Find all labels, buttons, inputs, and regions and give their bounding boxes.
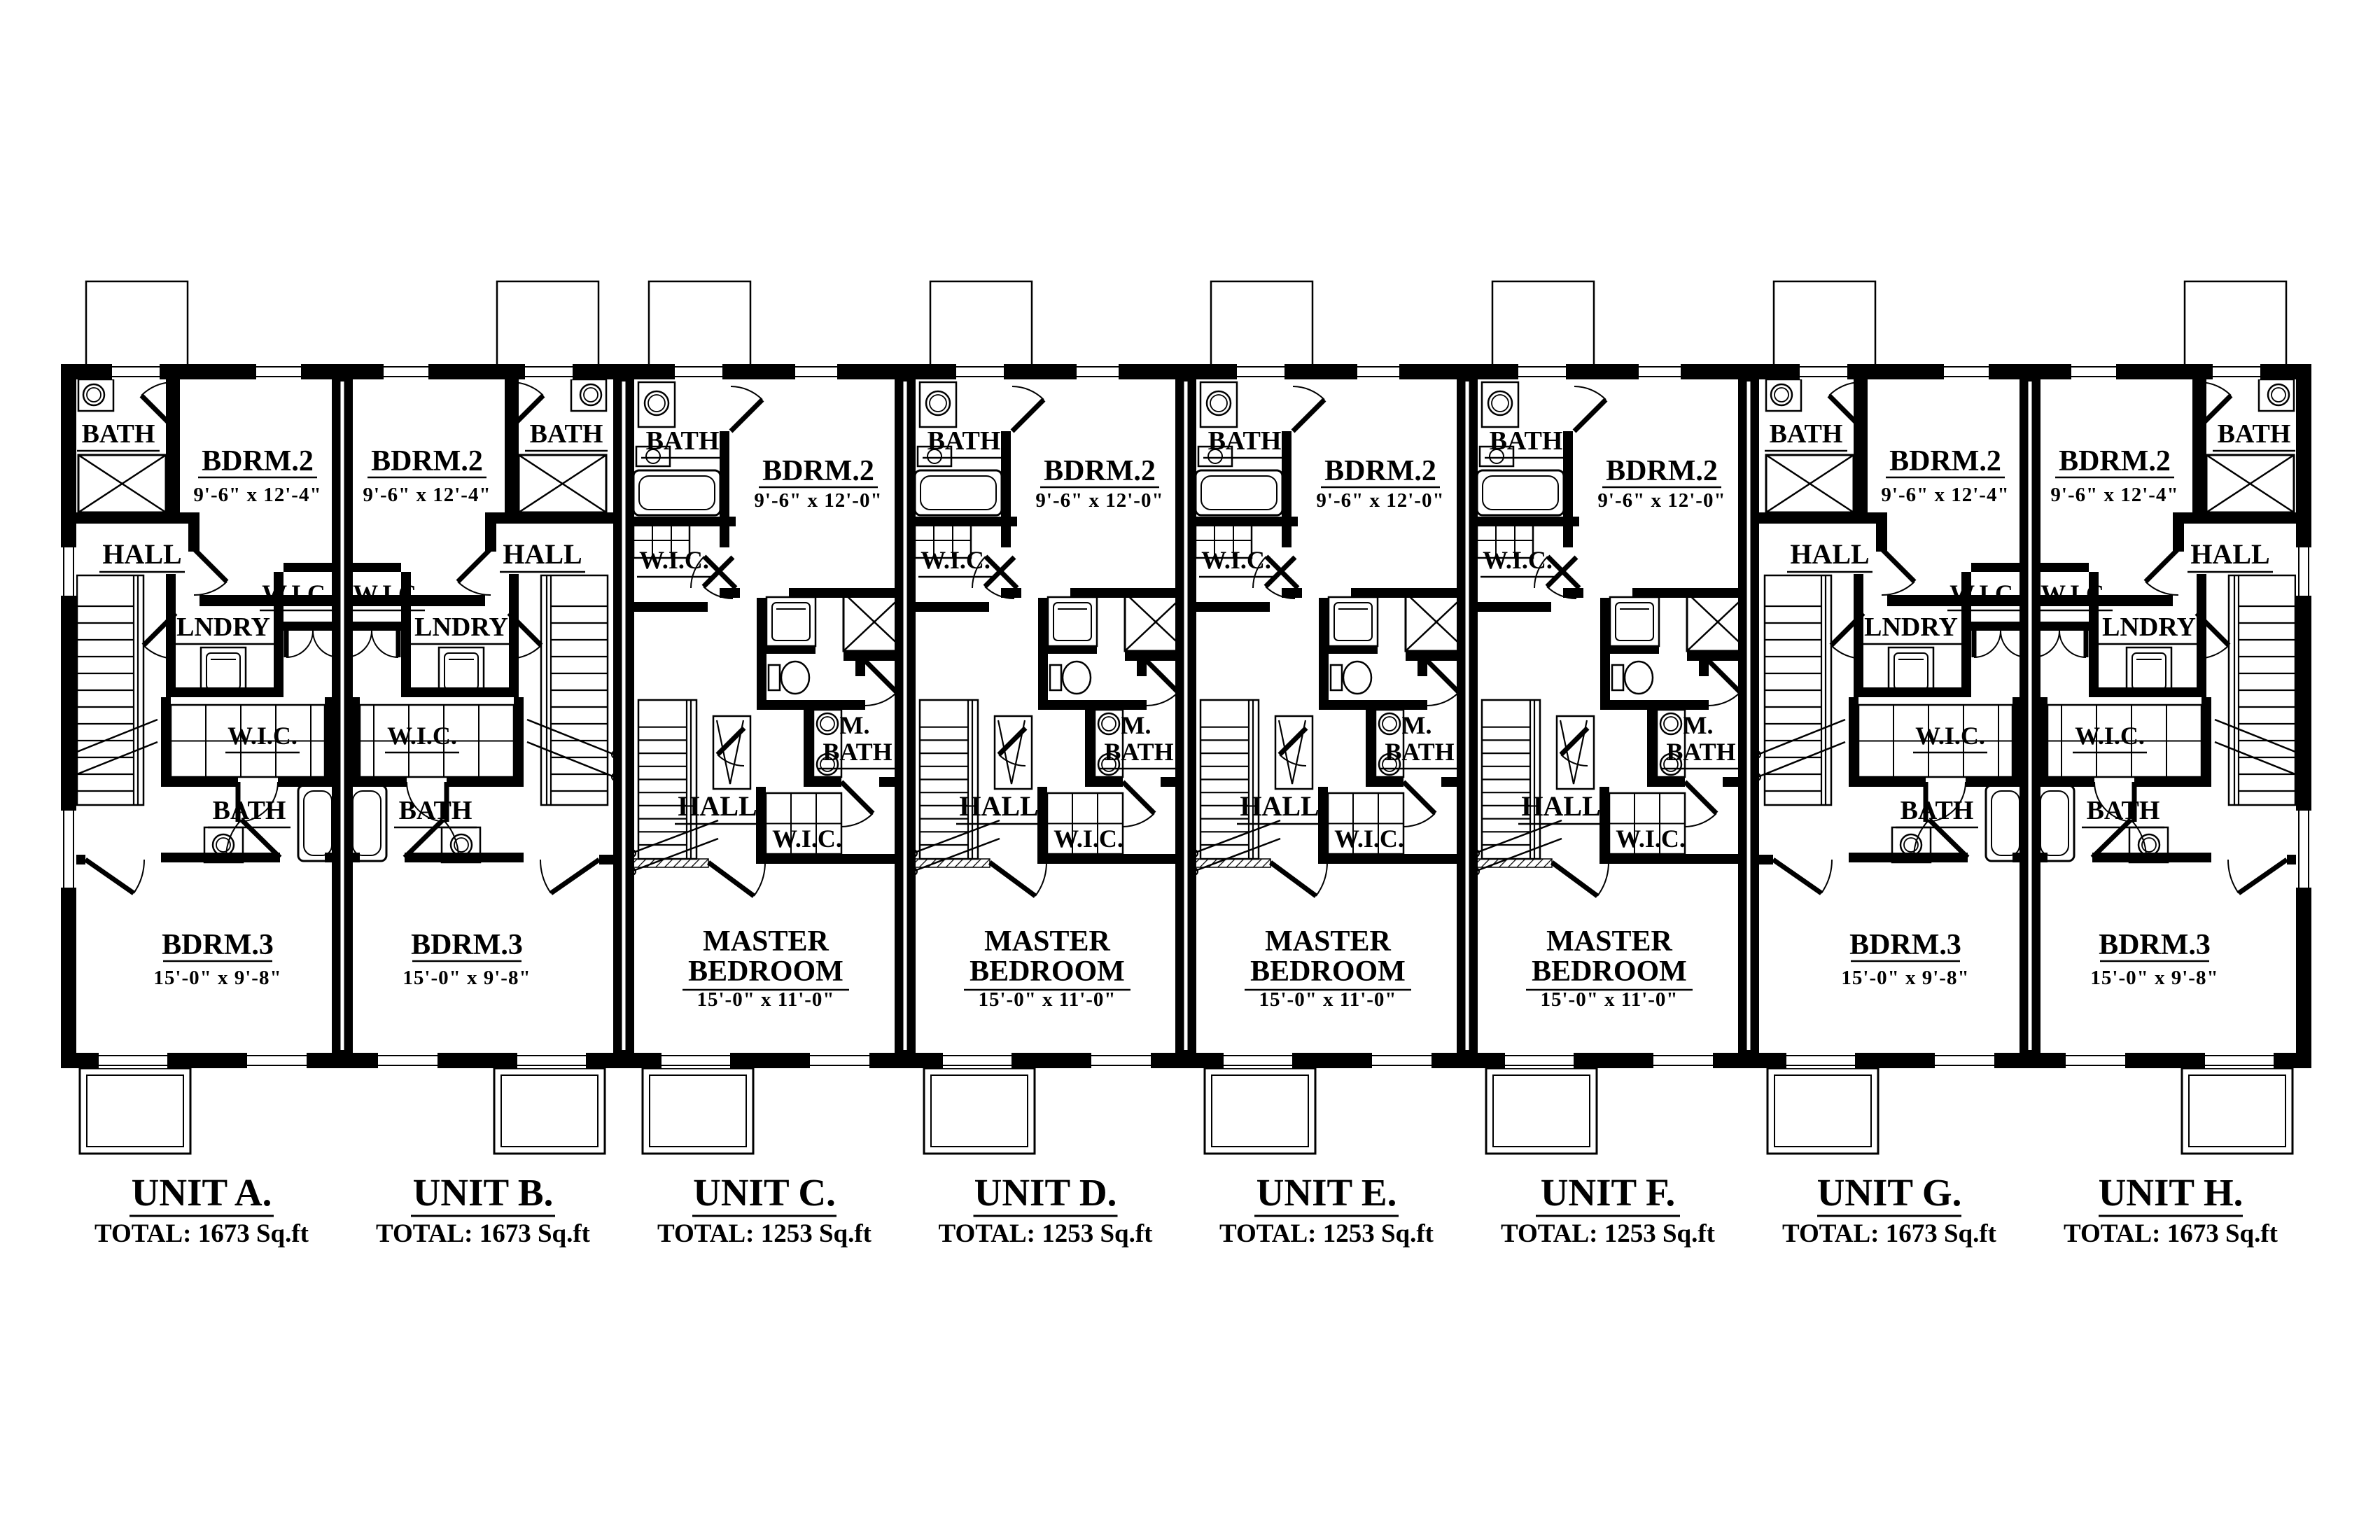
floor-plan: BATHBDRM.29'-6" x 12'-4"HALLW.I.C.LNDRYW… (0, 0, 2380, 1540)
interior-wall (485, 512, 624, 524)
unit-total-area: TOTAL: 1253 Sq.ft (1219, 1219, 1434, 1248)
interior-wall (766, 646, 815, 654)
door-leaf (2239, 860, 2287, 893)
interior-wall (1038, 598, 1048, 700)
interior-wall (1282, 588, 1302, 598)
door-leaf (1882, 549, 1914, 582)
door-leaf (1293, 400, 1324, 431)
interior-wall (624, 517, 736, 526)
room-label-bdrm2: BDRM.2 (762, 455, 874, 487)
room-label-hall: HALL (102, 538, 181, 570)
interior-wall (1085, 710, 1095, 777)
door-leaf (405, 820, 443, 857)
interior-wall (1563, 588, 1583, 598)
room-label-bath_mid: BATH (2087, 796, 2160, 825)
interior-wall (1610, 646, 1659, 654)
exterior-wall-right (2296, 364, 2311, 1068)
door-leaf (731, 400, 762, 431)
room-label-master_dims: 15'-0" x 11'-0" (1540, 988, 1678, 1011)
room-label-m_label: M. (1683, 711, 1714, 739)
door-swing-arc (754, 862, 765, 896)
room-label-wic_mid: W.I.C. (1915, 722, 1985, 750)
hatched-sill (1186, 859, 1270, 867)
interior-wall (2192, 378, 2206, 512)
door-swing-arc (226, 820, 241, 857)
bathtub-inner (2040, 791, 2068, 855)
room-label-bath_top: BATH (646, 426, 720, 456)
door-swing-arc (1147, 692, 1178, 706)
room-label-bdrm3_dims: 15'-0" x 9'-8" (1841, 967, 1969, 989)
toilet-bowl (781, 661, 809, 694)
interior-wall (1048, 646, 1097, 654)
porch-inner (2189, 1075, 2285, 1147)
interior-wall (1329, 646, 1378, 654)
door-swing-arc (731, 386, 762, 400)
room-label-wic_up: W.I.C. (639, 546, 709, 574)
room-label-bdrm3: BDRM.3 (411, 929, 523, 961)
laundry-box (920, 382, 956, 427)
room-label-bath_top: BATH (927, 426, 1001, 456)
washer-inner (444, 653, 478, 689)
unit-total-area: TOTAL: 1253 Sq.ft (1501, 1219, 1716, 1248)
room-label-bdrm3: BDRM.3 (162, 929, 274, 961)
party-wall-gap (1466, 381, 1469, 1050)
hatched-sill (1467, 859, 1552, 867)
porch-inner (1774, 1075, 1871, 1147)
room-label-master_2: BEDROOM (969, 955, 1125, 988)
unit-total-area: TOTAL: 1673 Sq.ft (1782, 1219, 1997, 1248)
unit-title: UNIT E. (1256, 1171, 1397, 1214)
door-leaf (990, 862, 1035, 896)
room-label-bath_mid: BATH (399, 796, 472, 825)
room-label-bath_top: BATH (1490, 426, 1563, 456)
interior-wall (905, 602, 989, 612)
interior-wall (1600, 700, 1709, 710)
toilet-tank (1050, 665, 1061, 690)
room-label-bdrm2_dims: 9'-6" x 12'-0" (1316, 489, 1444, 512)
door-swing-arc (194, 582, 227, 595)
interior-wall (509, 574, 519, 697)
door-leaf (1929, 820, 1968, 857)
plan-svg: BATHBDRM.29'-6" x 12'-4"HALLW.I.C.LNDRYW… (0, 0, 2380, 1540)
washer-drum (1210, 395, 1227, 412)
interior-wall (1849, 697, 1858, 787)
interior-wall (161, 853, 280, 862)
room-label-m_label: M. (1402, 711, 1432, 739)
chimney (649, 281, 750, 365)
interior-wall (1467, 602, 1551, 612)
door-swing-arc (2131, 820, 2146, 857)
interior-wall (1186, 602, 1270, 612)
interior-wall (1037, 787, 1047, 864)
unit-total-area: TOTAL: 1253 Sq.ft (657, 1219, 872, 1248)
toilet-tank (1612, 665, 1623, 690)
room-label-bath_top: BATH (1770, 419, 1843, 449)
interior-wall (1699, 661, 1709, 676)
interior-wall (505, 378, 519, 512)
room-label-wic_low: W.I.C. (1616, 825, 1686, 853)
door-swing-arc (865, 692, 897, 706)
interior-wall (2173, 512, 2311, 524)
bathtub-inner (920, 476, 996, 510)
room-label-bdrm3_dims: 15'-0" x 9'-8" (402, 967, 531, 989)
door-swing-arc (1280, 755, 1306, 766)
room-label-bath_top: BATH (1208, 426, 1282, 456)
interior-wall (188, 524, 199, 552)
room-label-wic_up: W.I.C. (1483, 546, 1553, 574)
interior-wall (1038, 700, 1147, 710)
interior-wall (1647, 777, 1685, 787)
room-label-hall: HALL (1521, 790, 1600, 822)
room-label-wic_mid: W.I.C. (2075, 722, 2145, 750)
washer-box (766, 597, 815, 646)
room-label-hall: HALL (678, 790, 757, 822)
party-wall-gap (341, 381, 344, 1050)
interior-wall (905, 517, 1017, 526)
room-label-bath_mid: BATH (213, 796, 286, 825)
interior-wall (1282, 526, 1291, 547)
door-swing-arc (999, 755, 1025, 766)
door-leaf (1427, 661, 1459, 692)
room-label-master_1: MASTER (1546, 925, 1672, 958)
door-swing-arc (2059, 631, 2086, 657)
room-label-bdrm3_dims: 15'-0" x 9'-8" (153, 967, 281, 989)
room-label-m_bath: BATH (822, 738, 892, 766)
room-label-master_1: MASTER (1265, 925, 1391, 958)
washer-drum (1492, 395, 1508, 412)
door-swing-arc (1427, 692, 1459, 706)
door-leaf (1123, 782, 1154, 813)
door-leaf (1685, 782, 1716, 813)
room-label-m_label: M. (1121, 711, 1151, 739)
toilet-bowl (1063, 661, 1091, 694)
sink-inner (1102, 717, 1116, 731)
bathtub (915, 470, 1002, 515)
room-label-bdrm3: BDRM.3 (2099, 929, 2211, 961)
unit-total-area: TOTAL: 1673 Sq.ft (94, 1219, 309, 1248)
washer-box (1329, 597, 1378, 646)
interior-wall (1467, 517, 1579, 526)
room-label-wic_low: W.I.C. (772, 825, 842, 853)
interior-wall (161, 777, 238, 787)
room-label-bdrm2: BDRM.2 (1044, 455, 1156, 487)
interior-wall (1137, 661, 1147, 676)
interior-wall (2173, 524, 2184, 552)
chimney (930, 281, 1032, 365)
room-label-bdrm2: BDRM.2 (1889, 445, 2001, 477)
room-label-hall: HALL (503, 538, 582, 570)
bathtub-inner (1483, 476, 1558, 510)
room-label-master_1: MASTER (703, 925, 829, 958)
interior-wall (61, 512, 199, 524)
door-swing-arc (540, 860, 551, 893)
interior-wall (1318, 787, 1328, 864)
sink-inner (87, 388, 101, 402)
door-leaf (1403, 782, 1435, 813)
room-label-wic_low: W.I.C. (1334, 825, 1404, 853)
washer-drum (648, 395, 665, 412)
bathtub-inner (304, 791, 332, 855)
door-swing-arc (443, 820, 458, 857)
toilet-bowl (1625, 661, 1653, 694)
door-swing-arc (1561, 755, 1588, 766)
room-label-bdrm2: BDRM.2 (202, 445, 314, 477)
door-swing-arc (841, 813, 873, 827)
unit-title: UNIT F. (1541, 1171, 1676, 1214)
interior-wall (757, 700, 865, 710)
chimney (86, 281, 188, 365)
hatched-sill (905, 859, 990, 867)
interior-wall (2201, 697, 2211, 787)
door-leaf (1012, 400, 1044, 431)
door-swing-arc (1574, 386, 1606, 400)
room-label-bdrm2: BDRM.2 (1324, 455, 1436, 487)
door-leaf (2092, 820, 2131, 857)
room-label-bdrm3_dims: 15'-0" x 9'-8" (2090, 967, 2218, 989)
washer-drum (930, 395, 946, 412)
porch-inner (1493, 1075, 1590, 1147)
unit-total-area: TOTAL: 1673 Sq.ft (2064, 1219, 2278, 1248)
interior-wall (1085, 777, 1123, 787)
door-leaf (1773, 860, 1821, 893)
bathtub-inner (639, 476, 715, 510)
door-leaf (865, 661, 897, 692)
washer-inner (2132, 653, 2166, 689)
porch-inner (1212, 1075, 1308, 1147)
door-swing-arc (1709, 692, 1740, 706)
room-label-master_dims: 15'-0" x 11'-0" (1259, 988, 1396, 1011)
washer-inner (1894, 653, 1928, 689)
interior-wall (514, 697, 524, 787)
door-swing-arc (372, 631, 398, 657)
door-swing-arc (1974, 631, 2001, 657)
party-wall-gap (1184, 381, 1188, 1050)
room-label-bath_top: BATH (82, 419, 155, 449)
door-swing-arc (1597, 862, 1609, 896)
room-label-bdrm3: BDRM.3 (1849, 929, 1961, 961)
room-label-wic_side: W.I.C. (262, 580, 332, 608)
interior-wall (1366, 777, 1403, 787)
door-swing-arc (1012, 386, 1044, 400)
sink-inner (1382, 717, 1396, 731)
unit-title: UNIT D. (974, 1171, 1117, 1214)
interior-wall (447, 777, 524, 787)
unit-total-area: TOTAL: 1253 Sq.ft (939, 1219, 1154, 1248)
room-label-master_1: MASTER (984, 925, 1110, 958)
porch-inner (931, 1075, 1028, 1147)
interior-wall (166, 574, 176, 697)
door-swing-arc (1035, 862, 1046, 896)
room-label-master_2: BEDROOM (1532, 955, 1687, 988)
door-leaf (708, 862, 754, 896)
interior-wall (405, 853, 524, 862)
room-label-bath_top: BATH (2218, 419, 2291, 449)
interior-wall (1854, 574, 1863, 697)
porch-inner (87, 1075, 183, 1147)
bathtub (633, 470, 720, 515)
bathtub (1477, 470, 1564, 515)
interior-wall (1563, 526, 1573, 547)
room-label-lndry: LNDRY (2102, 612, 2196, 642)
interior-wall (1319, 700, 1427, 710)
interior-wall (1319, 598, 1329, 700)
interior-wall (161, 697, 171, 787)
bathtub (1196, 470, 1282, 515)
laundry-box (1482, 382, 1518, 427)
party-wall-gap (904, 381, 907, 1050)
interior-wall (1854, 378, 1868, 512)
interior-wall (720, 588, 740, 598)
interior-wall (1599, 787, 1609, 864)
party-wall-gap (1747, 381, 1751, 1050)
door-swing-arc (1123, 813, 1154, 827)
toilet-tank (1331, 665, 1342, 690)
door-swing-arc (134, 860, 144, 893)
interior-wall (804, 777, 841, 787)
door-leaf (2145, 549, 2178, 582)
interior-wall (1849, 777, 1926, 787)
unit-title: UNIT C. (693, 1171, 836, 1214)
door-swing-arc (1914, 820, 1929, 857)
hatched-sill (624, 859, 708, 867)
door-leaf (85, 860, 134, 893)
room-label-wic_mid: W.I.C. (227, 722, 297, 750)
interior-wall (624, 602, 708, 612)
room-label-bdrm2: BDRM.2 (371, 445, 483, 477)
porch-inner (501, 1075, 598, 1147)
chimney (497, 281, 598, 365)
room-label-m_bath: BATH (1104, 738, 1173, 766)
toilet-bowl (1343, 661, 1371, 694)
unit-title: UNIT A. (132, 1171, 272, 1214)
interior-wall (855, 661, 865, 676)
door-swing-arc (1821, 860, 1832, 893)
door-leaf (551, 860, 599, 893)
room-label-bdrm2_dims: 9'-6" x 12'-0" (1597, 489, 1725, 512)
interior-wall (2134, 777, 2211, 787)
interior-wall (1366, 710, 1375, 777)
interior-wall (1001, 526, 1011, 547)
chimney (1774, 281, 1875, 365)
party-wall-gap (2029, 381, 2032, 1050)
door-leaf (458, 549, 491, 582)
sink-inner (820, 717, 834, 731)
interior-wall (1849, 853, 1968, 862)
interior-wall (720, 526, 729, 547)
room-label-m_bath: BATH (1385, 738, 1454, 766)
sink-inner (584, 388, 598, 402)
door-swing-arc (1882, 582, 1914, 595)
door-swing-arc (1293, 386, 1324, 400)
room-label-lndry: LNDRY (1864, 612, 1958, 642)
bathtub-inner (353, 791, 381, 855)
room-label-wic_side: W.I.C. (1949, 580, 2019, 608)
door-swing-arc (2145, 582, 2178, 595)
room-label-hall: HALL (959, 790, 1038, 822)
room-label-master_dims: 15'-0" x 11'-0" (696, 988, 834, 1011)
toilet-tank (769, 665, 780, 690)
sink-inner (2271, 388, 2285, 402)
interior-wall (1186, 517, 1298, 526)
interior-wall (2197, 574, 2206, 697)
washer-box (1610, 597, 1659, 646)
laundry-box (638, 382, 675, 427)
laundry-box (1200, 382, 1237, 427)
door-swing-arc (717, 755, 744, 766)
room-label-lndry: LNDRY (414, 612, 508, 642)
room-label-m_label: M. (840, 711, 870, 739)
party-wall-gap (622, 381, 626, 1050)
bathtub-inner (1991, 791, 2019, 855)
room-label-bdrm2_dims: 9'-6" x 12'-4" (193, 484, 321, 506)
interior-wall (166, 378, 180, 512)
room-label-lndry: LNDRY (176, 612, 270, 642)
interior-wall (1600, 598, 1610, 700)
interior-wall (1876, 524, 1887, 552)
room-label-hall: HALL (2190, 538, 2269, 570)
interior-wall (804, 710, 813, 777)
door-leaf (1270, 862, 1316, 896)
unit-title: UNIT H. (2099, 1171, 2243, 1214)
room-label-wic_up: W.I.C. (920, 546, 990, 574)
interior-wall (485, 524, 496, 552)
room-label-bdrm2_dims: 9'-6" x 12'-4" (363, 484, 491, 506)
sink-inner (1664, 717, 1678, 731)
exterior-wall-left (61, 364, 76, 1068)
interior-wall (1001, 588, 1021, 598)
door-leaf (1574, 400, 1606, 431)
interior-wall (757, 598, 766, 700)
interior-wall (756, 787, 766, 864)
room-label-wic_low: W.I.C. (1053, 825, 1123, 853)
door-swing-arc (1403, 813, 1435, 827)
room-label-bdrm2_dims: 9'-6" x 12'-4" (2050, 484, 2178, 506)
room-label-wic_mid: W.I.C. (387, 722, 457, 750)
door-swing-arc (1316, 862, 1327, 896)
interior-wall (1647, 710, 1657, 777)
door-leaf (1709, 661, 1740, 692)
room-label-bdrm2_dims: 9'-6" x 12'-0" (1035, 489, 1163, 512)
chimney (1492, 281, 1594, 365)
room-label-m_bath: BATH (1666, 738, 1735, 766)
door-swing-arc (458, 582, 491, 595)
room-label-bath_mid: BATH (1900, 796, 1974, 825)
room-label-bdrm2_dims: 9'-6" x 12'-4" (1881, 484, 2009, 506)
room-label-bath_top: BATH (530, 419, 603, 449)
room-label-wic_up: W.I.C. (1201, 546, 1271, 574)
washer-box (1048, 597, 1097, 646)
door-leaf (194, 549, 227, 582)
unit-title: UNIT G. (1817, 1171, 1962, 1214)
door-leaf (841, 782, 873, 813)
interior-wall (1417, 661, 1427, 676)
door-leaf (1552, 862, 1597, 896)
room-label-master_2: BEDROOM (1250, 955, 1406, 988)
bathtub-inner (1201, 476, 1277, 510)
door-leaf (241, 820, 280, 857)
door-swing-arc (286, 631, 313, 657)
interior-wall (2092, 853, 2211, 862)
chimney (1211, 281, 1312, 365)
room-label-hall: HALL (1790, 538, 1869, 570)
chimney (2185, 281, 2286, 365)
washer-inner (206, 653, 240, 689)
room-label-bdrm2: BDRM.2 (2059, 445, 2171, 477)
porch-inner (650, 1075, 746, 1147)
unit-total-area: TOTAL: 1673 Sq.ft (376, 1219, 591, 1248)
door-leaf (1147, 661, 1178, 692)
door-swing-arc (2228, 860, 2239, 893)
